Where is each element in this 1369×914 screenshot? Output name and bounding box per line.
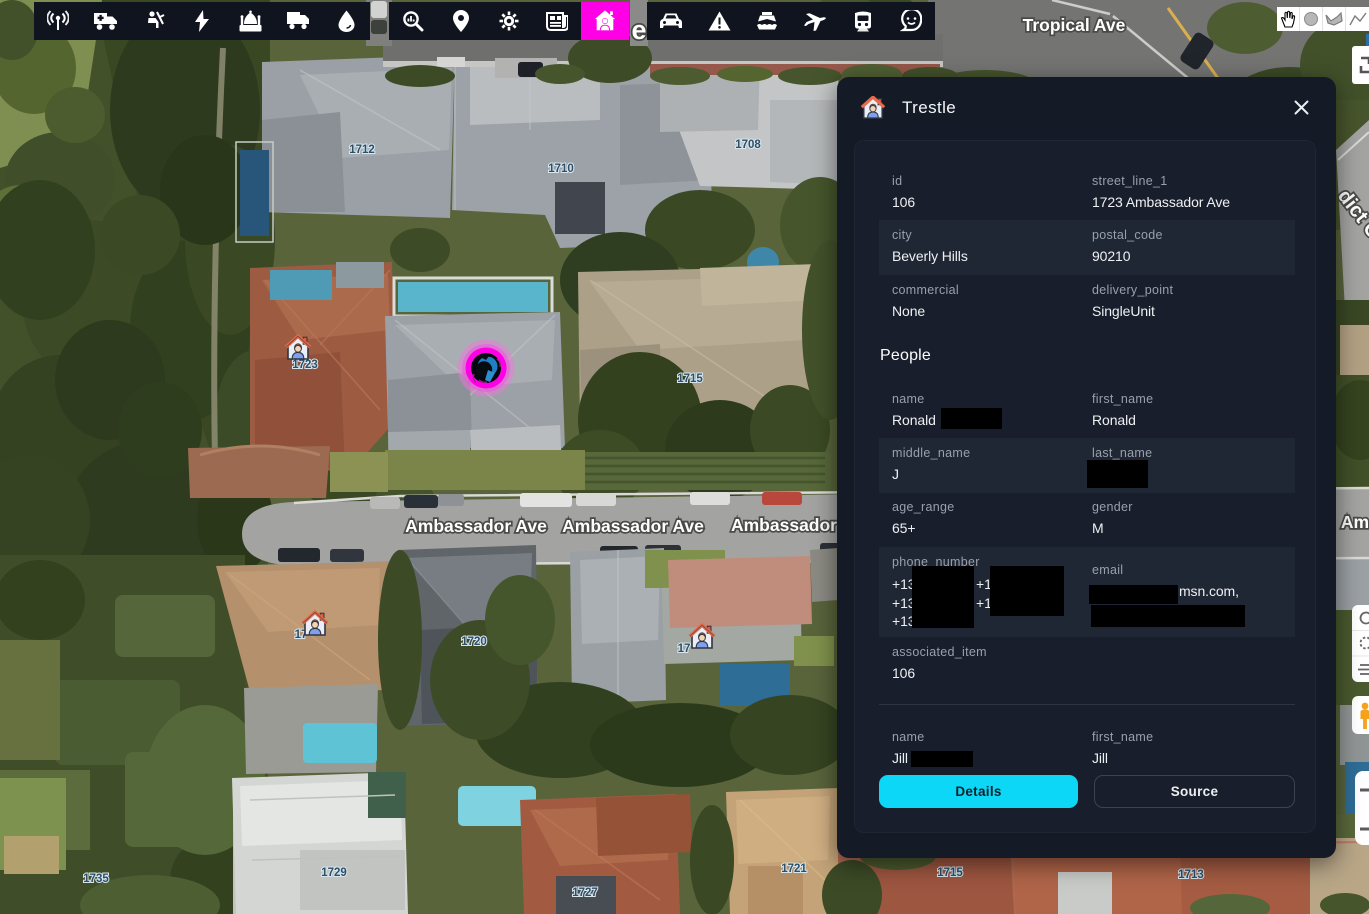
svg-text:1720: 1720 — [461, 636, 487, 648]
svg-text:1721: 1721 — [781, 863, 807, 875]
svg-text:Ambassador Ave: Ambassador Ave — [405, 516, 547, 536]
svg-text:1723: 1723 — [292, 359, 318, 371]
svg-text:Ambassador Ave: Ambassador Ave — [562, 516, 704, 536]
svg-text:1710: 1710 — [548, 163, 574, 175]
svg-text:1715: 1715 — [937, 867, 963, 879]
svg-text:e: e — [631, 15, 646, 45]
svg-text:1735: 1735 — [83, 873, 109, 885]
svg-text:1708: 1708 — [735, 139, 761, 151]
svg-text:Ambassador: Ambassador — [731, 515, 837, 535]
svg-text:Tropical Ave: Tropical Ave — [1023, 15, 1126, 35]
svg-text:1727: 1727 — [572, 887, 598, 899]
svg-text:Am: Am — [1341, 512, 1369, 532]
svg-text:1713: 1713 — [1178, 869, 1204, 881]
svg-text:17: 17 — [678, 643, 691, 655]
svg-text:1729: 1729 — [321, 867, 347, 879]
svg-text:1712: 1712 — [349, 144, 375, 156]
svg-text:1715: 1715 — [677, 373, 703, 385]
